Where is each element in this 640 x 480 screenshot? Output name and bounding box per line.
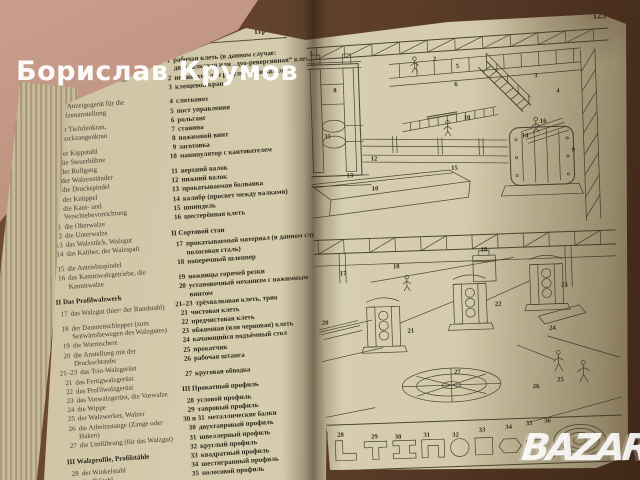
entry-number: 22 (61, 387, 77, 397)
figure-callout: 32 (452, 432, 459, 439)
entry-number: 14 (168, 194, 184, 204)
figure-callout: 12 (371, 156, 378, 163)
entry-number: 19 (58, 342, 74, 352)
entry-number: 7 (163, 125, 179, 135)
entry-number: 11 (166, 167, 182, 177)
entry-number: 26 (63, 424, 79, 434)
trio-stand (447, 274, 494, 330)
figure-callout: 33 (479, 427, 487, 434)
entry-term: круговая обводка (195, 359, 338, 378)
figure-callout: 25 (557, 376, 565, 383)
figure-callout: 29 (371, 433, 379, 440)
repeater-loop (402, 366, 502, 403)
staircase (478, 52, 531, 113)
profile-ibeam (393, 440, 416, 459)
entry-number: 8 (163, 134, 179, 144)
entry-number: 18 (56, 324, 72, 334)
profile-round (450, 438, 469, 457)
figure-callout: 21 (407, 328, 414, 335)
pinion-stand (499, 126, 583, 197)
upper-roll (322, 120, 345, 133)
entry-number: 9 (164, 143, 180, 153)
figure-callout: 30 (395, 434, 403, 441)
entry-number: 33 (186, 451, 202, 461)
entry-number: 13 (167, 185, 183, 195)
rolling-mill-illustration: 1234567891010111213141516171819202122232… (301, 25, 624, 473)
figure-callout: 10 (464, 114, 472, 121)
crane-girder (308, 230, 618, 296)
figure-callout: 34 (505, 424, 513, 431)
figure-callout: 5 (456, 63, 460, 70)
entry-number: 35 (187, 469, 203, 479)
entry-number: 23 (61, 397, 77, 407)
figure-callout: 14 (522, 132, 530, 139)
entry-number: 32 (185, 442, 201, 452)
entry-number: 22 (176, 317, 192, 327)
entry-number: 15 (168, 203, 184, 213)
entry-number: 10 (165, 152, 181, 162)
figure-callout: 31 (423, 432, 430, 439)
watermark-name: Борислав Крумов (16, 56, 298, 87)
figure-callout: 19 (481, 246, 489, 253)
figure-callout: 9 (572, 147, 576, 154)
entry-number: 20 (174, 281, 190, 291)
figure-callout: 28 (337, 432, 345, 439)
entry-term: III Прокатный профиль (182, 380, 259, 393)
entry-number: 16 (169, 213, 185, 223)
figure-callout: 2 (433, 56, 437, 63)
figure-callouts: 1234567891010111213141516171819202122232… (304, 41, 586, 467)
lattice-column (580, 47, 600, 221)
entry-term: der Tiefofenkran, Blockzangenkran (57, 120, 157, 144)
entry-number: 24 (62, 406, 78, 416)
page-number: 123 (592, 10, 606, 20)
entry-number: 31 (184, 433, 200, 443)
entry-number: 21 (176, 308, 192, 318)
entry-number: 26 (179, 354, 195, 364)
section-mill-hall (308, 246, 622, 430)
entry-number: 24 (177, 336, 193, 346)
entry-number: 34 (186, 460, 202, 470)
figure-callout: 36 (544, 417, 552, 424)
entry-number: 18 (172, 258, 188, 268)
profile-square (475, 437, 493, 455)
figure-callout: 10 (372, 185, 380, 192)
figure-callout: 24 (549, 325, 557, 332)
entry-number: 5 (161, 106, 177, 116)
manipulator-apron (308, 169, 472, 218)
entry-term: II Сортовой стан (171, 225, 225, 237)
entry-number: 19 (173, 272, 189, 282)
profile-angle (335, 440, 356, 461)
entry-number: 29 (182, 405, 198, 415)
entry-number: 17 (55, 310, 71, 320)
figure-callout: 26 (533, 383, 541, 390)
watermark-bazar-logo: BAZAR (520, 426, 640, 469)
profile-hex (499, 438, 522, 453)
profile-tee (364, 441, 387, 460)
entry-number: 28 (182, 396, 198, 406)
drive-spindles (362, 132, 509, 168)
entry-number: 27 (180, 369, 196, 379)
control-walkway (389, 48, 582, 87)
profile-channel (422, 439, 445, 458)
entry-number: 27 (65, 442, 81, 452)
figure-callout: 23 (561, 281, 569, 288)
entry-number: 6 (162, 116, 178, 126)
figure-callout: 13 (346, 172, 354, 179)
entry-number: 25 (63, 415, 79, 425)
figure-callout: 4 (556, 87, 560, 94)
figure-callout: 18 (393, 263, 401, 270)
figure-callout: 16 (540, 118, 548, 125)
entry-term: II Das Profilwalzwerk (56, 294, 122, 307)
figure-callout: 8 (333, 87, 337, 94)
figure-callout: 27 (454, 369, 462, 376)
entry-number: 17 (171, 240, 187, 250)
entry-number: 21 (60, 378, 76, 388)
figure-callout: 22 (495, 301, 502, 308)
entry-number: 12 (166, 176, 182, 186)
entry-number: 25 (178, 345, 194, 355)
figure-callout: 11 (325, 133, 332, 140)
figure-callout: 20 (322, 320, 330, 327)
book-photo: Прокатная I Das Blockwalzwerk 1 das Walz… (0, 0, 640, 480)
figure-callout: 1 (309, 50, 313, 57)
figure-callout: 15 (451, 165, 459, 172)
blooming-stand (301, 53, 372, 187)
entry-number: 20 (58, 351, 74, 361)
entry-number: 23 (177, 327, 193, 337)
trio-stand (360, 297, 407, 353)
entry-number: 30 (184, 423, 200, 433)
entry-number: 4 (161, 97, 177, 107)
figure-callout: 6 (454, 81, 458, 88)
figure-callout: 17 (340, 270, 348, 277)
roof-truss (301, 28, 610, 61)
entry-number: 28 (66, 469, 82, 479)
